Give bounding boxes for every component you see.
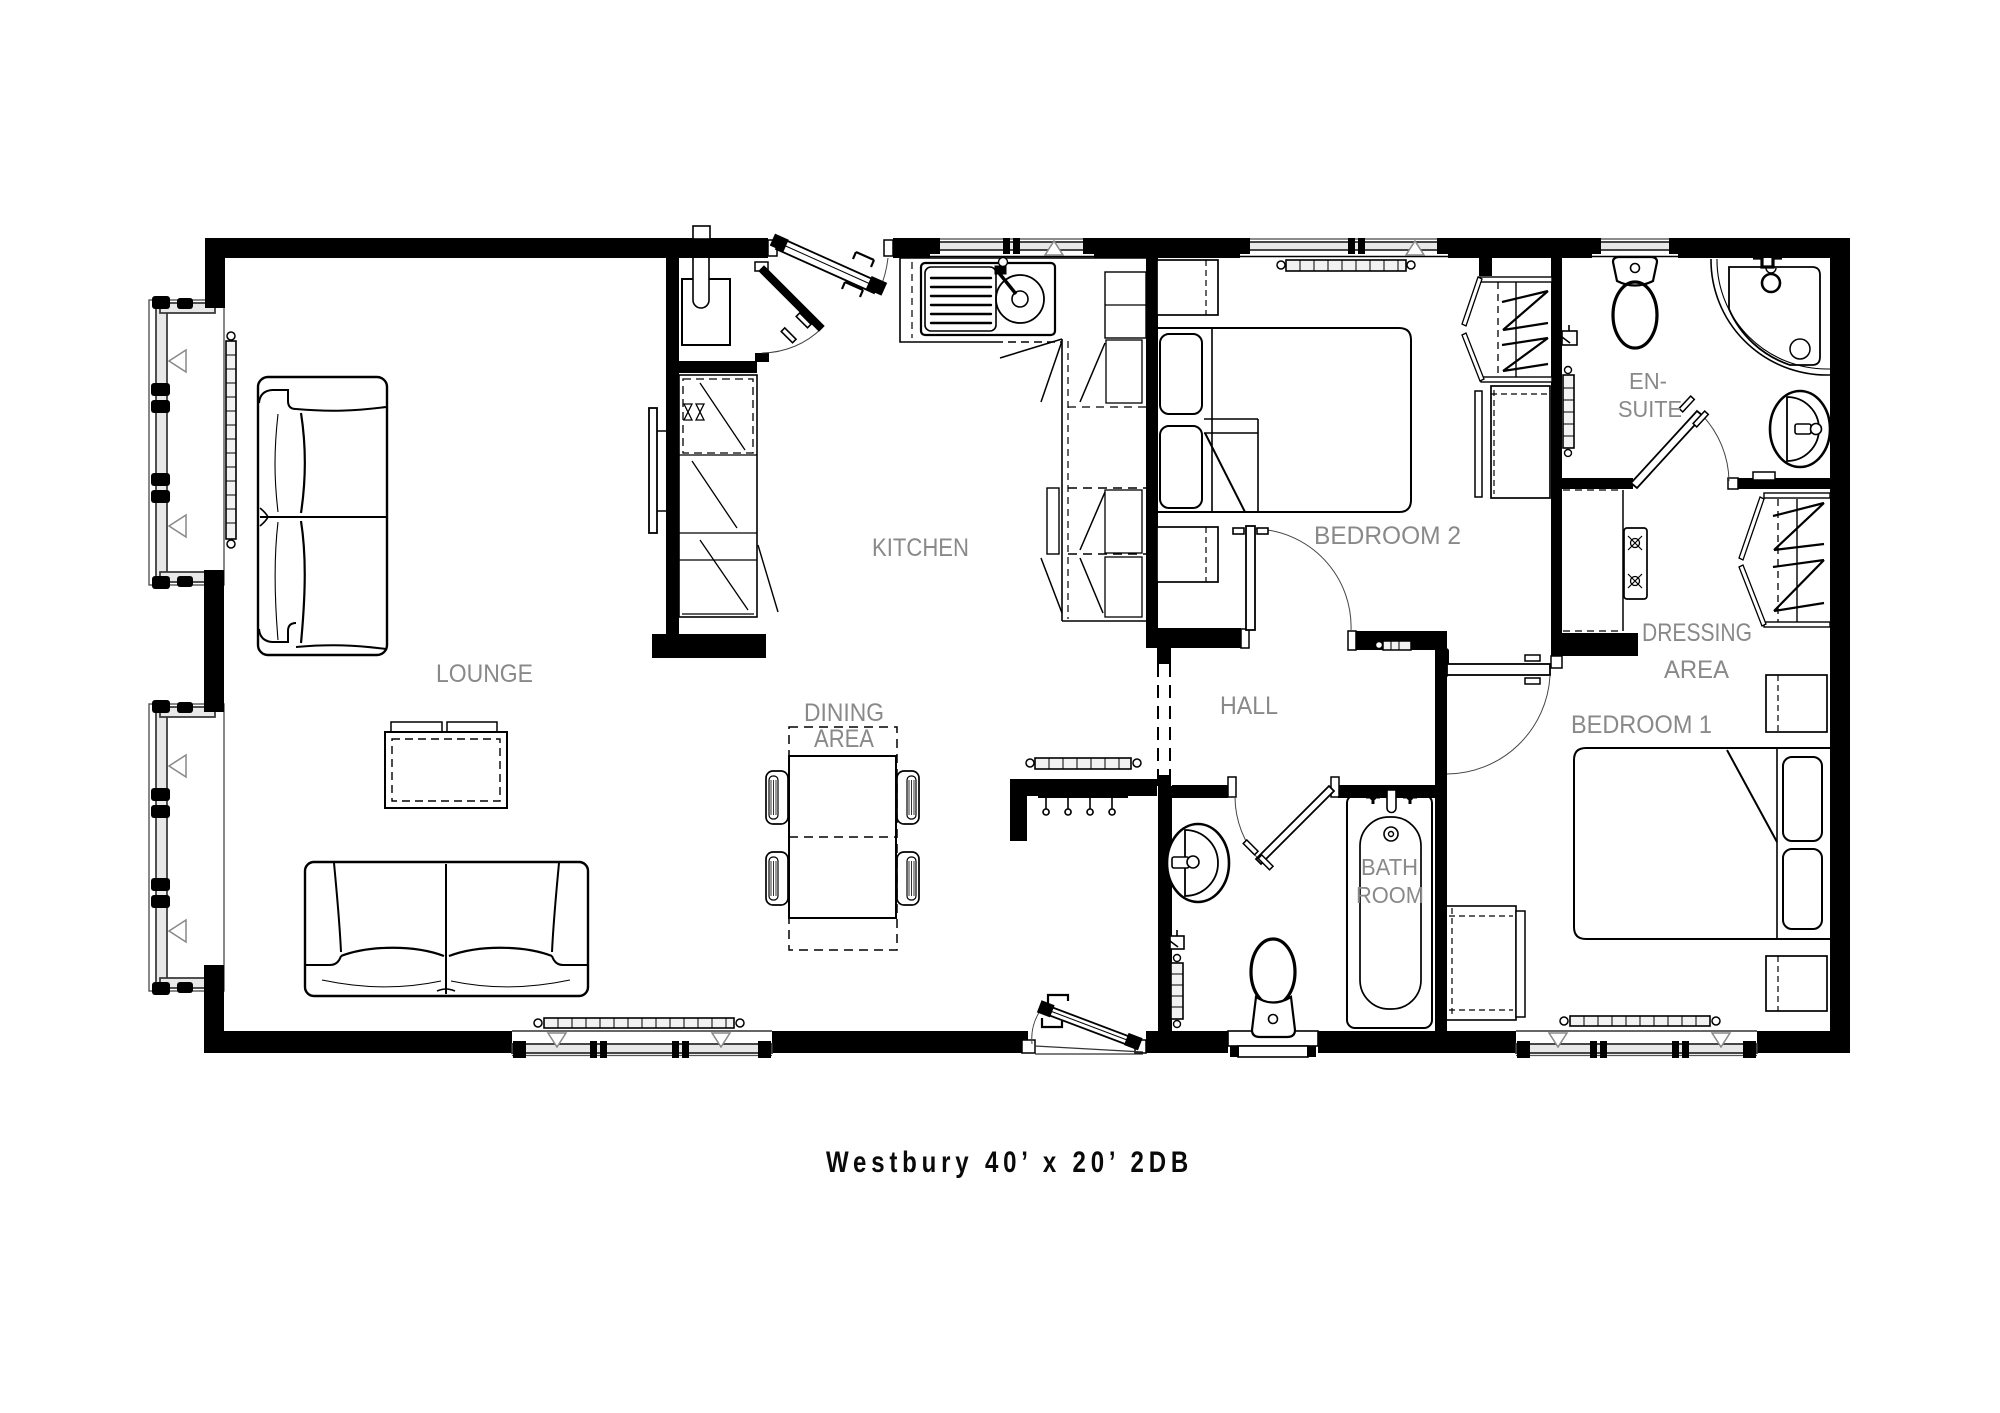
- svg-text:LOUNGE: LOUNGE: [436, 660, 533, 688]
- svg-text:KITCHEN: KITCHEN: [872, 534, 969, 562]
- svg-text:SUITE: SUITE: [1618, 396, 1682, 422]
- svg-text:AREA: AREA: [814, 725, 874, 753]
- svg-text:BEDROOM 2: BEDROOM 2: [1314, 522, 1461, 550]
- svg-text:BEDROOM 1: BEDROOM 1: [1571, 711, 1712, 739]
- svg-text:HALL: HALL: [1220, 692, 1278, 720]
- svg-text:Westbury 40’ x 20’ 2DB: Westbury 40’ x 20’ 2DB: [826, 1146, 1193, 1179]
- svg-text:AREA: AREA: [1664, 656, 1729, 684]
- svg-text:DRESSING: DRESSING: [1642, 619, 1752, 647]
- svg-text:DINING: DINING: [804, 699, 884, 727]
- svg-text:EN-: EN-: [1629, 368, 1667, 394]
- svg-text:BATH: BATH: [1361, 854, 1418, 880]
- svg-text:ROOM: ROOM: [1356, 882, 1424, 908]
